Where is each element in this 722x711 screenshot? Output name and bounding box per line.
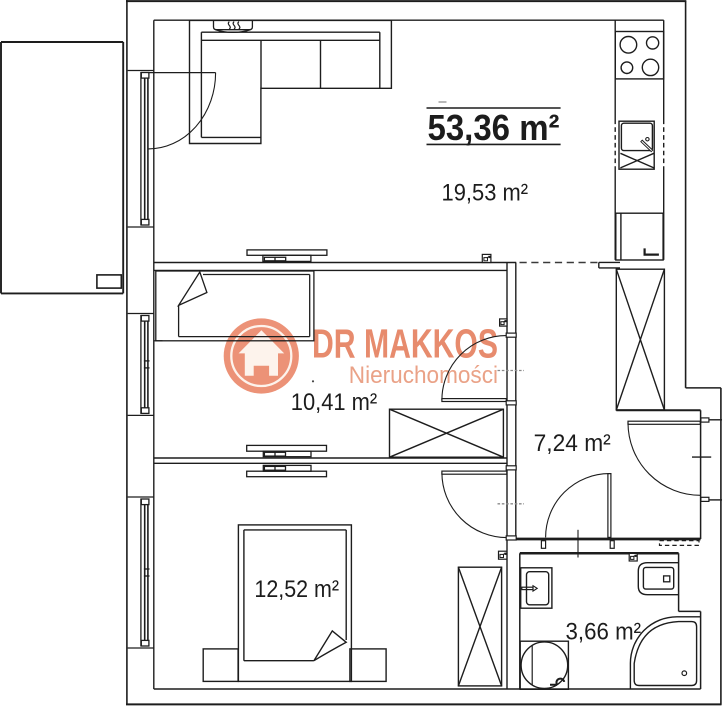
svg-text:10,41 m²: 10,41 m² — [291, 389, 377, 416]
svg-text:7,24 m²: 7,24 m² — [534, 430, 611, 457]
svg-text:Nieruchomości: Nieruchomości — [349, 362, 498, 389]
svg-text:12,52 m²: 12,52 m² — [254, 576, 339, 603]
svg-text:53,36 m²: 53,36 m² — [428, 107, 560, 148]
svg-text:DR MAKKOS: DR MAKKOS — [312, 321, 498, 367]
svg-text:19,53 m²: 19,53 m² — [442, 180, 529, 207]
svg-text:3,66 m²: 3,66 m² — [566, 618, 642, 645]
